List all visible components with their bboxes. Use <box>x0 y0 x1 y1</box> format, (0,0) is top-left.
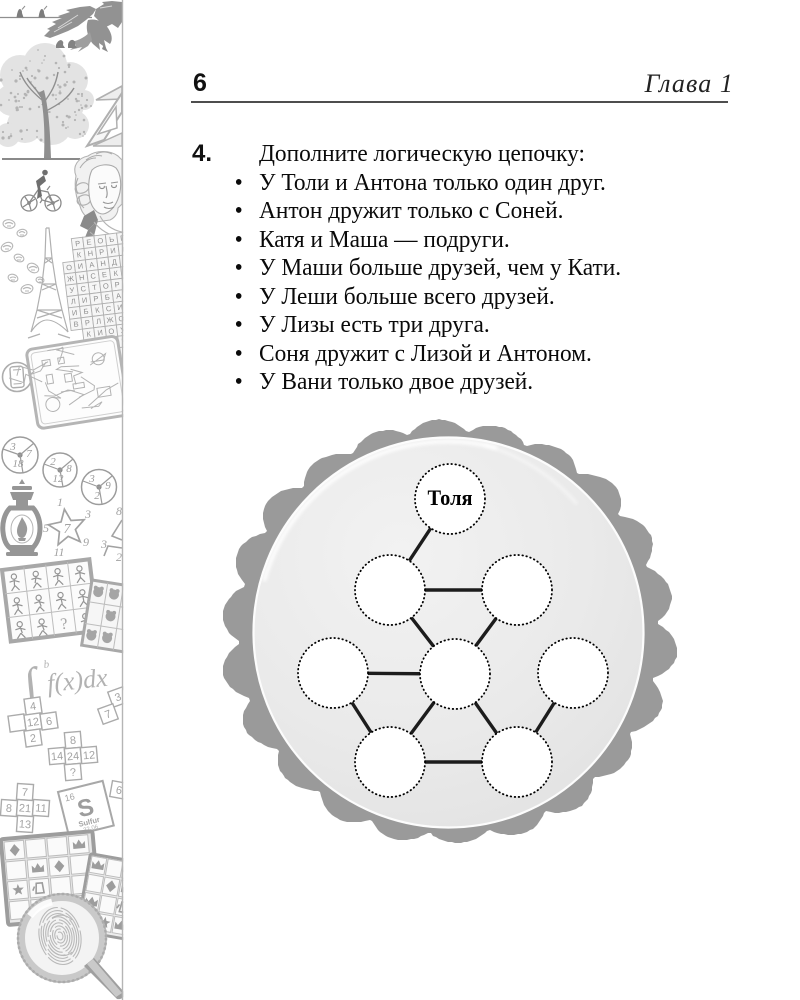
svg-text:f(x)dx: f(x)dx <box>46 663 110 698</box>
svg-text:И: И <box>97 328 103 338</box>
svg-text:3: 3 <box>100 537 107 551</box>
svg-text:Р: Р <box>99 247 105 257</box>
svg-text:12: 12 <box>26 716 40 730</box>
svg-text:11: 11 <box>53 545 64 559</box>
svg-text:И: И <box>71 308 77 318</box>
svg-text:9: 9 <box>105 480 111 492</box>
svg-text:5: 5 <box>43 521 49 535</box>
svg-text:Н: Н <box>100 259 106 269</box>
svg-text:Н: Н <box>87 249 93 259</box>
svg-text:7: 7 <box>64 522 72 537</box>
svg-text:И: И <box>77 261 83 271</box>
svg-text:Ж: Ж <box>67 274 75 284</box>
svg-text:Н: Н <box>79 273 85 283</box>
svg-text:13: 13 <box>18 818 31 831</box>
svg-text:7: 7 <box>26 448 32 460</box>
svg-text:1: 1 <box>57 495 63 509</box>
svg-text:8: 8 <box>66 463 72 475</box>
svg-text:В: В <box>73 319 79 329</box>
svg-text:Д: Д <box>111 257 117 267</box>
svg-text:?: ? <box>70 767 77 779</box>
svg-text:2: 2 <box>94 490 100 502</box>
svg-text:2: 2 <box>50 456 56 468</box>
svg-text:12: 12 <box>53 473 65 485</box>
svg-text:3: 3 <box>9 441 16 453</box>
svg-text:24: 24 <box>66 750 79 763</box>
svg-text:8: 8 <box>5 803 12 815</box>
svg-text:18: 18 <box>13 458 25 470</box>
svg-text:И: И <box>81 295 87 305</box>
svg-text:8: 8 <box>70 735 77 747</box>
svg-text:12: 12 <box>82 749 95 762</box>
svg-text:21: 21 <box>18 802 31 815</box>
svg-text:7: 7 <box>21 787 28 799</box>
svg-text:Ж: Ж <box>106 315 114 325</box>
svg-text:11: 11 <box>35 802 47 815</box>
svg-text:И: И <box>110 246 116 256</box>
svg-text:b: b <box>43 658 50 671</box>
svg-text:8: 8 <box>116 504 122 518</box>
svg-text:14: 14 <box>50 750 63 763</box>
svg-text:Толя: Толя <box>428 485 473 510</box>
svg-text:3: 3 <box>84 507 91 521</box>
svg-text:Е: Е <box>101 270 107 280</box>
svg-text:9: 9 <box>83 535 89 549</box>
svg-text:2: 2 <box>116 550 122 564</box>
svg-text:3: 3 <box>88 473 95 485</box>
